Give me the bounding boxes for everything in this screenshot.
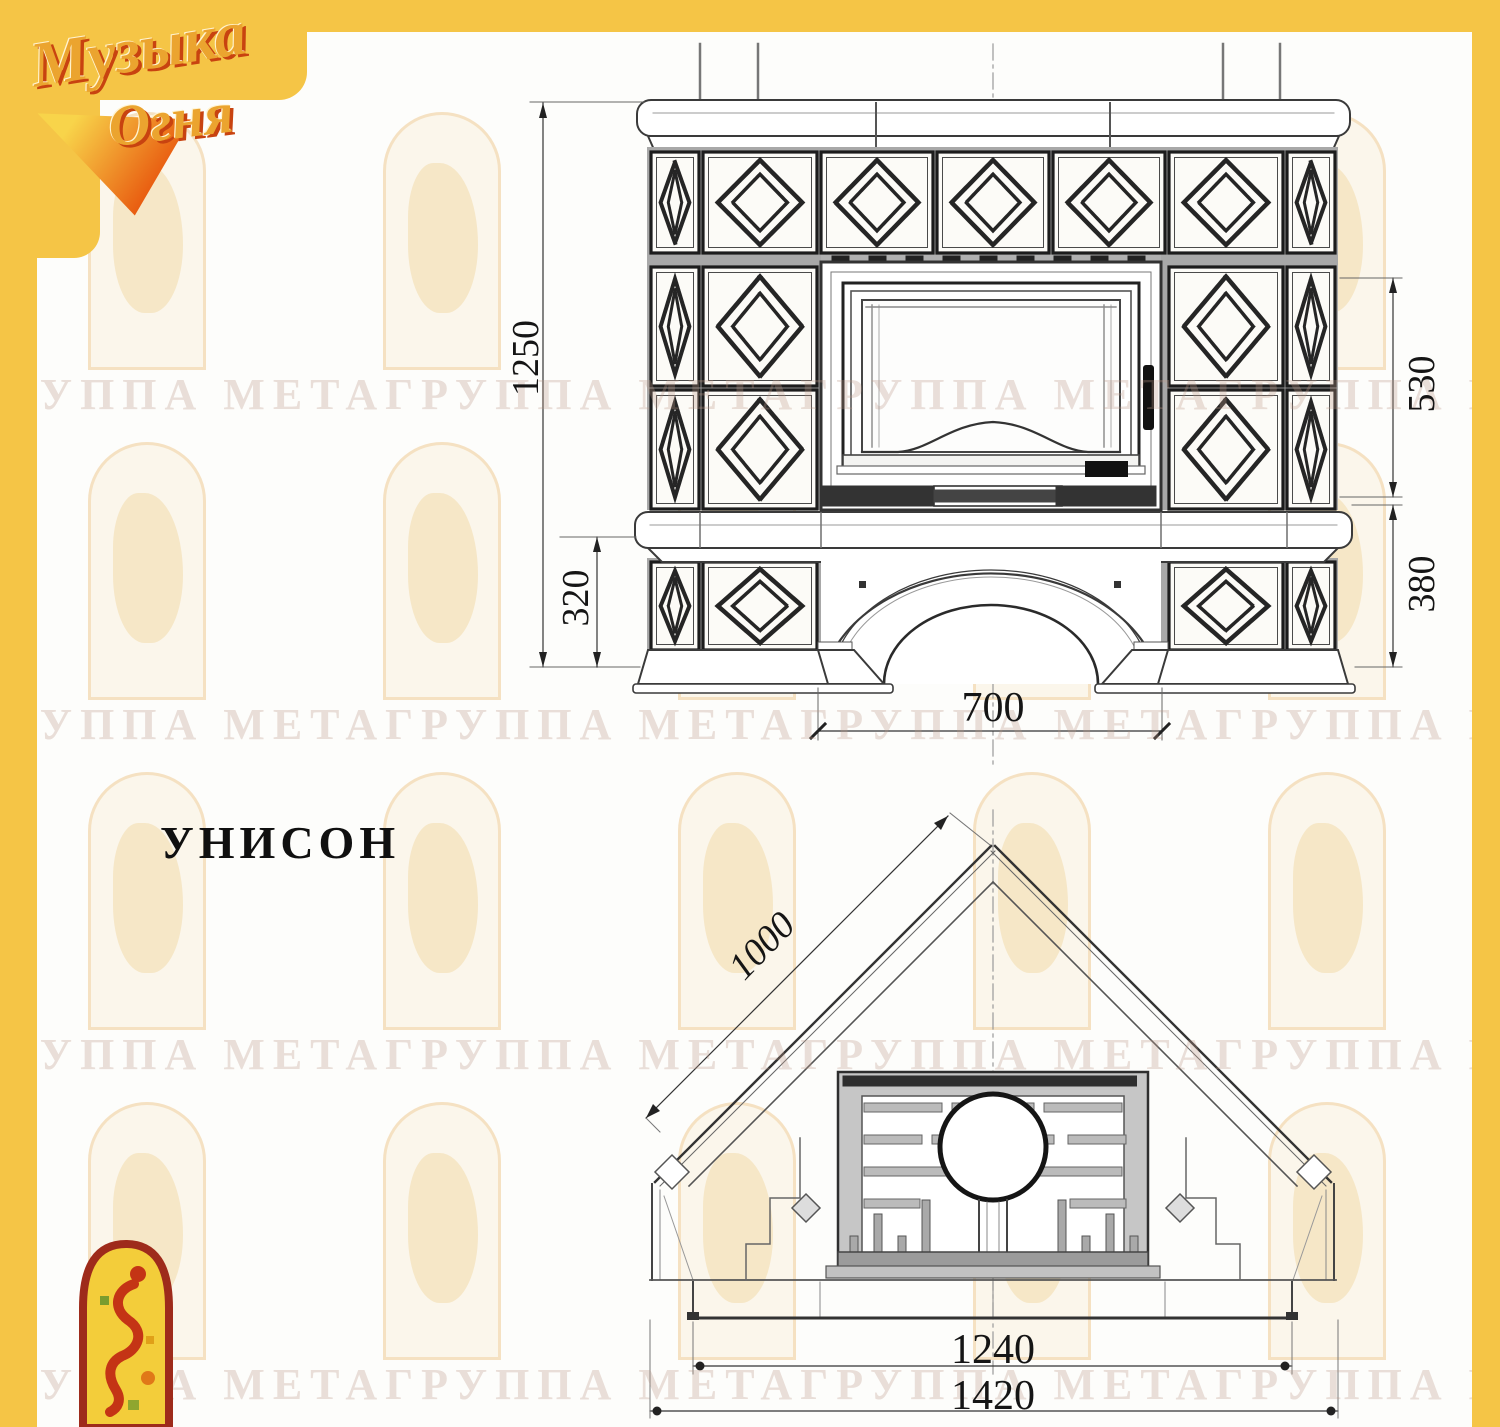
dim-firebox-height-label: 530 (1400, 304, 1444, 464)
dim-overall-width-label: 1420 (913, 1372, 1073, 1420)
dim-plinth-height-right-label: 380 (1400, 504, 1444, 664)
catalog-page: ГРУППА МЕТАГРУППА МЕТАГРУППА МЕТАГРУППА … (0, 0, 1500, 1427)
watermark-text: ГРУППА МЕТАГРУППА МЕТАГРУППА МЕТАГРУППА … (0, 369, 1500, 420)
dim-hearth-width-label: 1240 (913, 1326, 1073, 1374)
mascot-emblem (76, 1236, 176, 1427)
flue-circle (940, 1094, 1046, 1200)
dim-portal-width-label: 700 (913, 684, 1073, 732)
watermark-text: ГРУППА МЕТАГРУППА МЕТАГРУППА МЕТАГРУППА … (0, 1359, 1500, 1410)
mantel-belt (635, 512, 1352, 548)
watermark-text: ГРУППА МЕТАГРУППА МЕТАГРУППА МЕТАГРУППА … (0, 699, 1500, 750)
model-title: УНИСОН (160, 816, 400, 869)
dim-plinth-height-left-label: 320 (554, 518, 598, 678)
watermark-text: ГРУППА МЕТАГРУППА МЕТАГРУППА МЕТАГРУППА … (0, 1029, 1500, 1080)
cornice (637, 100, 1350, 136)
ash-lip (1085, 461, 1128, 477)
logo-word-2: Огня (104, 79, 237, 161)
dim-overall-height-label: 1250 (504, 278, 548, 438)
brand-logo: Музыка Огня (0, 0, 330, 270)
frame-right (1472, 0, 1500, 1427)
wood-niche (821, 560, 1161, 684)
